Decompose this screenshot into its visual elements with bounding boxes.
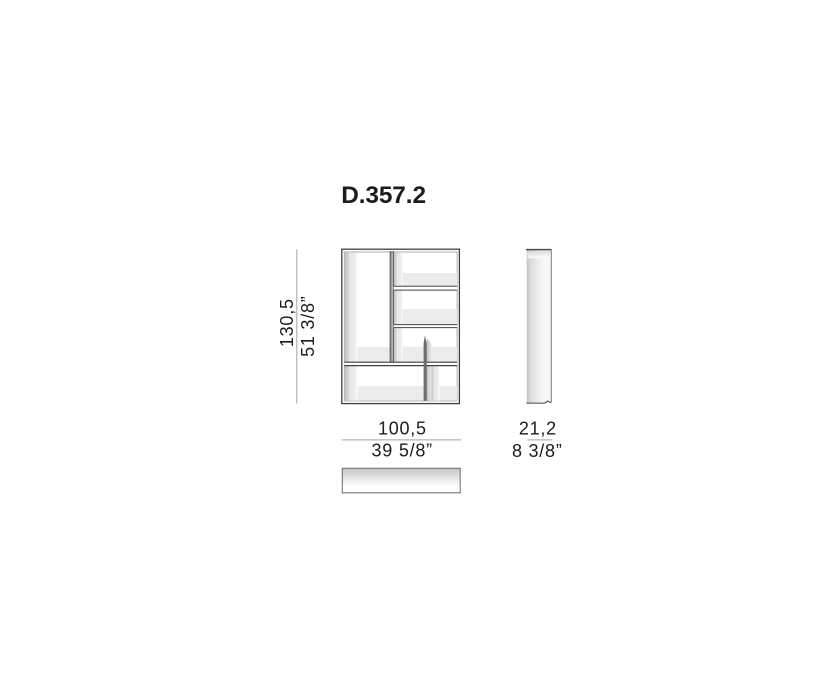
svg-text:21,2: 21,2 — [519, 419, 557, 439]
svg-text:130,5: 130,5 — [277, 298, 297, 347]
svg-text:100,5: 100,5 — [378, 419, 427, 439]
svg-text:51 3/8”: 51 3/8” — [298, 296, 318, 357]
svg-text:D.357.2: D.357.2 — [341, 182, 426, 209]
svg-text:8 3/8”: 8 3/8” — [512, 441, 563, 461]
svg-text:39 5/8”: 39 5/8” — [372, 441, 433, 461]
